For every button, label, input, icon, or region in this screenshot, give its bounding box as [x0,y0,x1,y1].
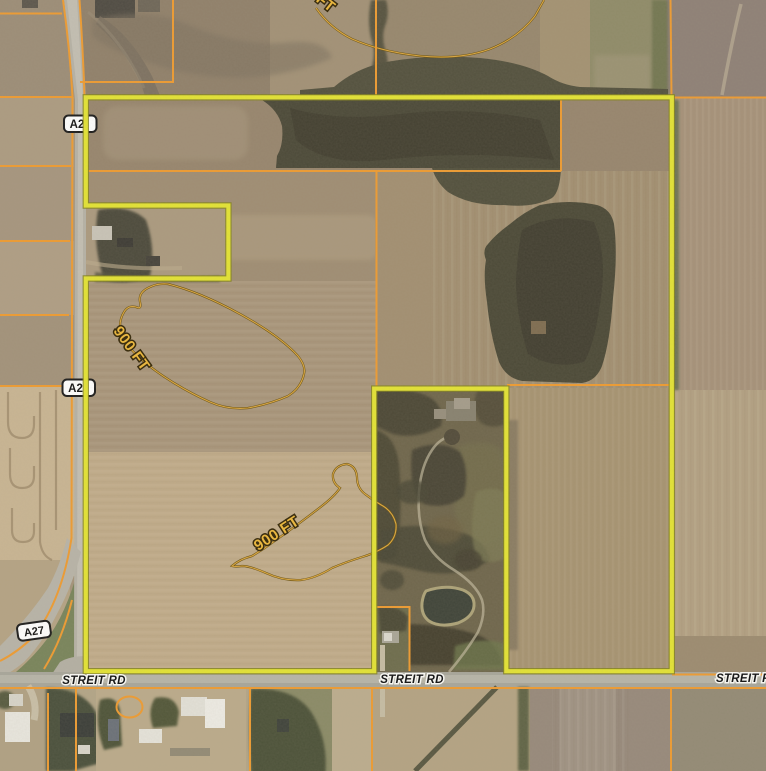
svg-text:STREIT RD: STREIT RD [380,674,443,686]
svg-text:STREIT RD: STREIT RD [62,675,125,687]
svg-text:STREIT RD: STREIT RD [716,673,766,685]
